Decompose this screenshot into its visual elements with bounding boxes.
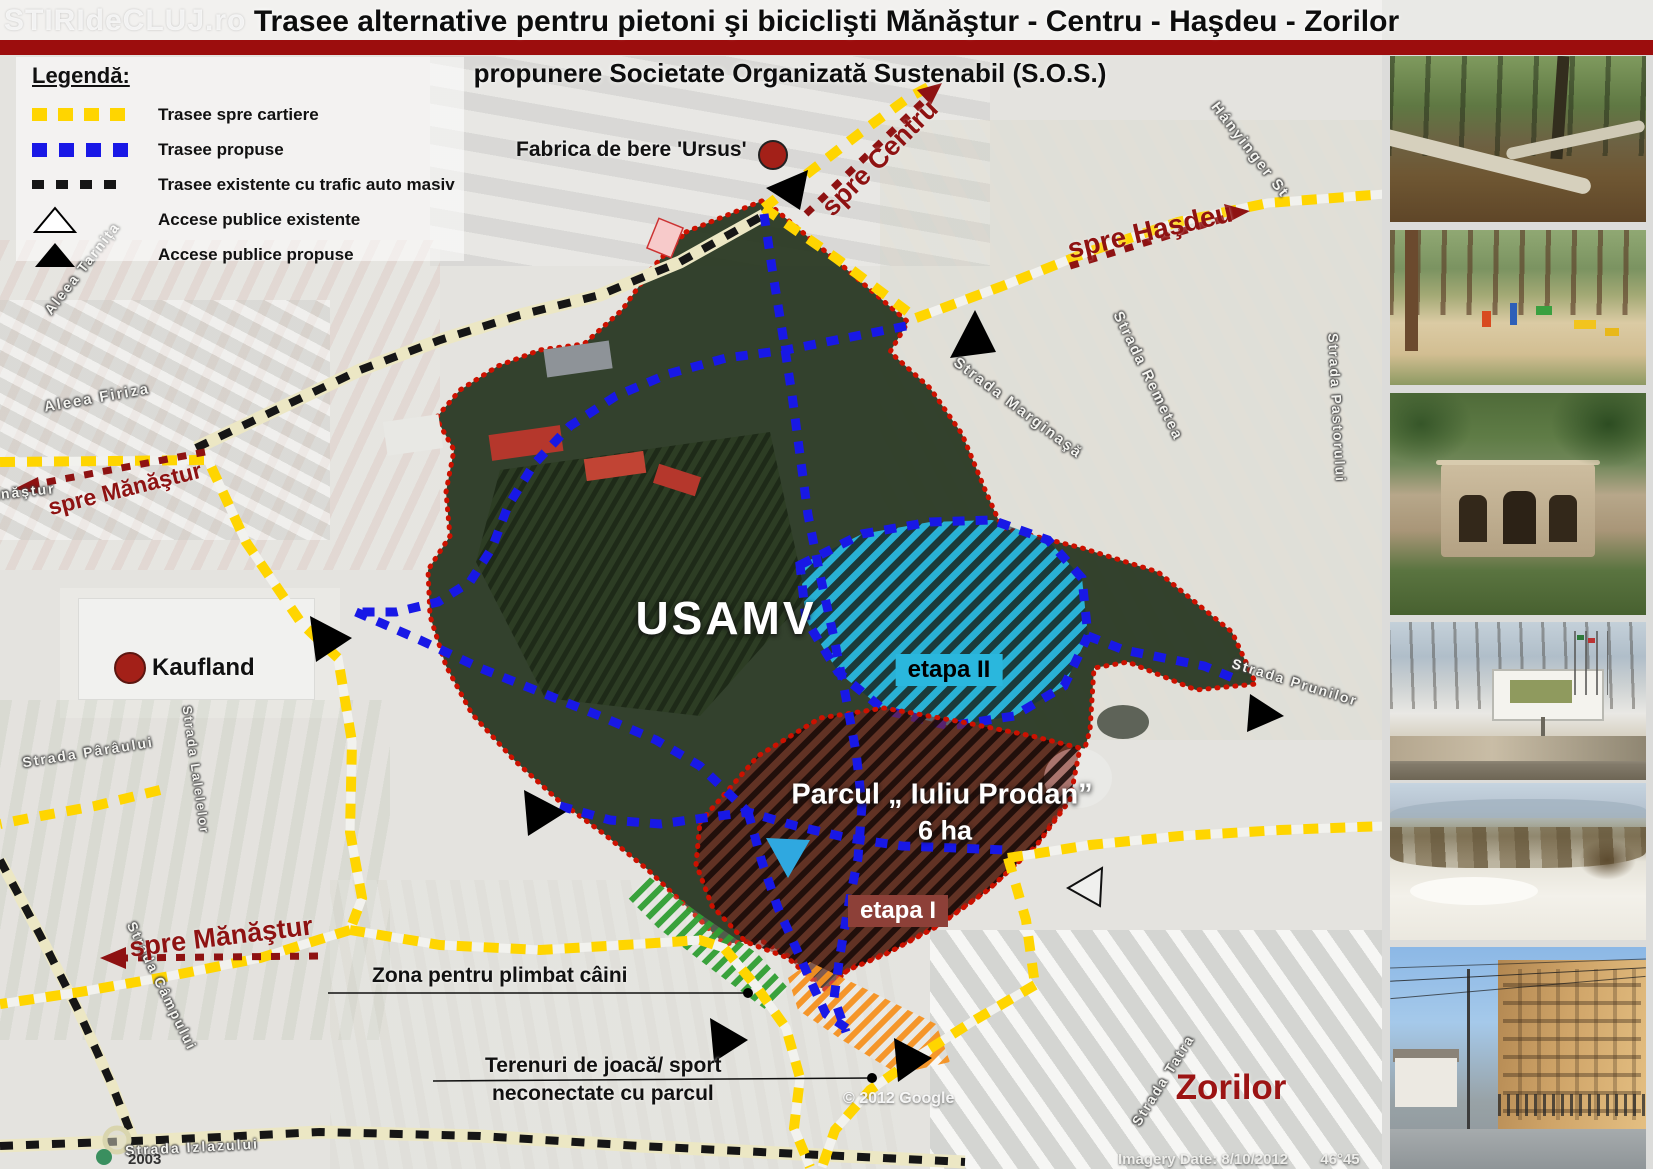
route-yellow-hasdeu xyxy=(916,194,1385,318)
yellow-dashes-icon xyxy=(32,108,132,121)
photo-snow-path xyxy=(1390,736,1646,761)
legend-label: Trasee existente cu trafic auto masiv xyxy=(158,175,455,195)
leader-dot-dog xyxy=(743,988,753,998)
watermark-stiridecluj: STIRIdeCLUJ.ro xyxy=(4,4,246,38)
legend-label: Trasee propuse xyxy=(158,140,284,160)
route-yellow-spur xyxy=(0,790,160,824)
label-playgrounds-1: Terenuri de joacă/ sport xyxy=(485,1054,722,1078)
leader-dot-play xyxy=(867,1073,877,1083)
google-watermark: © 2012 Google xyxy=(843,1090,954,1108)
photo-snow-patch xyxy=(1410,877,1538,905)
legend-label: Trasee spre cartiere xyxy=(158,105,319,125)
arrowhead-manastur-sv xyxy=(100,947,126,969)
label-zorilor: Zorilor xyxy=(1176,1068,1287,1108)
legend-item-cartiere: Trasee spre cartiere xyxy=(32,97,464,132)
imagery-date-text: Imagery Date: 8/10/2012 xyxy=(1118,1151,1288,1168)
label-ursus: Fabrica de bere 'Ursus' xyxy=(516,138,747,162)
kaufland-marker xyxy=(115,653,145,683)
coordinates-text: 46°45 xyxy=(1320,1151,1359,1168)
photo-flag xyxy=(1588,638,1595,643)
legend-label: Accese publice propuse xyxy=(158,245,354,265)
label-etapa1: etapa I xyxy=(848,895,948,927)
label-park-name: Parcul „ Iuliu Prodan” xyxy=(791,779,1092,812)
blue-dashes-icon xyxy=(32,143,132,157)
photo-pole xyxy=(1467,969,1470,1129)
label-etapa2: etapa II xyxy=(896,654,1003,686)
legend-item-existente: Trasee existente cu trafic auto masiv xyxy=(32,167,464,202)
campus-building-white xyxy=(383,414,443,455)
access-existing-east xyxy=(1068,868,1102,906)
photo-snowy-meadow xyxy=(1390,783,1646,940)
copyright-year: 2003 xyxy=(128,1151,161,1168)
photo-trees xyxy=(1390,230,1646,315)
photo-ruined-chapel xyxy=(1390,393,1646,615)
access-proposed-east xyxy=(1247,694,1284,732)
title-divider-bar xyxy=(0,40,1653,55)
page-title: Trasee alternative pentru pietoni şi bic… xyxy=(0,5,1653,39)
pond xyxy=(1097,705,1149,739)
map-infographic: Fabrica de bere 'Ursus' Kaufland USAMV Z… xyxy=(0,0,1653,1169)
photo-house xyxy=(1395,1058,1456,1107)
label-park-area: 6 ha xyxy=(918,816,972,847)
ursus-marker xyxy=(759,141,787,169)
photo-foliage xyxy=(1551,393,1646,468)
logo-dot-green xyxy=(96,1149,112,1165)
page-subtitle: propunere Societate Organizată Sustenabi… xyxy=(0,58,1580,89)
photo-equipment-yellow xyxy=(1574,320,1596,329)
label-playgrounds-2: neconectate cu parcul xyxy=(492,1082,714,1106)
route-yellow-east-link xyxy=(1008,858,1035,985)
label-dog-zone: Zona pentru plimbat câini xyxy=(372,964,628,988)
access-proposed-hasdeu xyxy=(950,310,996,358)
photo-fence xyxy=(1498,1094,1646,1116)
white-triangle-icon xyxy=(32,205,78,235)
photo-equipment-yellow xyxy=(1605,328,1619,336)
photo-window xyxy=(1549,495,1577,542)
imagery-date: Imagery Date: 8/10/2012 46°45 xyxy=(1118,1151,1360,1168)
photo-tree-trunk xyxy=(1405,230,1418,351)
photo-foliage xyxy=(1390,393,1472,464)
legend-item-acces-existente: Accese publice existente xyxy=(32,202,464,237)
leader-playgrounds xyxy=(433,1078,872,1081)
photo-equipment-red xyxy=(1482,311,1491,327)
photo-winter-park-sign xyxy=(1390,622,1646,780)
legend-label: Accese publice existente xyxy=(158,210,360,230)
photo-billboard-image xyxy=(1510,680,1571,702)
photo-equipment-green xyxy=(1536,306,1552,315)
photo-hills xyxy=(1390,799,1646,818)
legend-item-acces-propuse: Accese publice propuse xyxy=(32,237,464,272)
legend-item-propuse: Trasee propuse xyxy=(32,132,464,167)
photo-road xyxy=(1390,1129,1646,1169)
photo-street-buildings xyxy=(1390,947,1646,1169)
photo-window xyxy=(1459,495,1487,542)
label-kaufland: Kaufland xyxy=(152,654,255,682)
label-usamv: USAMV xyxy=(635,591,816,645)
route-yellow-west xyxy=(0,460,362,930)
photo-flag xyxy=(1577,635,1584,640)
black-dashes-icon xyxy=(32,180,124,189)
photo-forest-playground xyxy=(1390,230,1646,385)
photo-window xyxy=(1503,491,1536,544)
photo-bush xyxy=(1579,840,1635,881)
black-triangle-icon xyxy=(32,240,78,270)
photo-banner-blue xyxy=(1510,303,1517,325)
